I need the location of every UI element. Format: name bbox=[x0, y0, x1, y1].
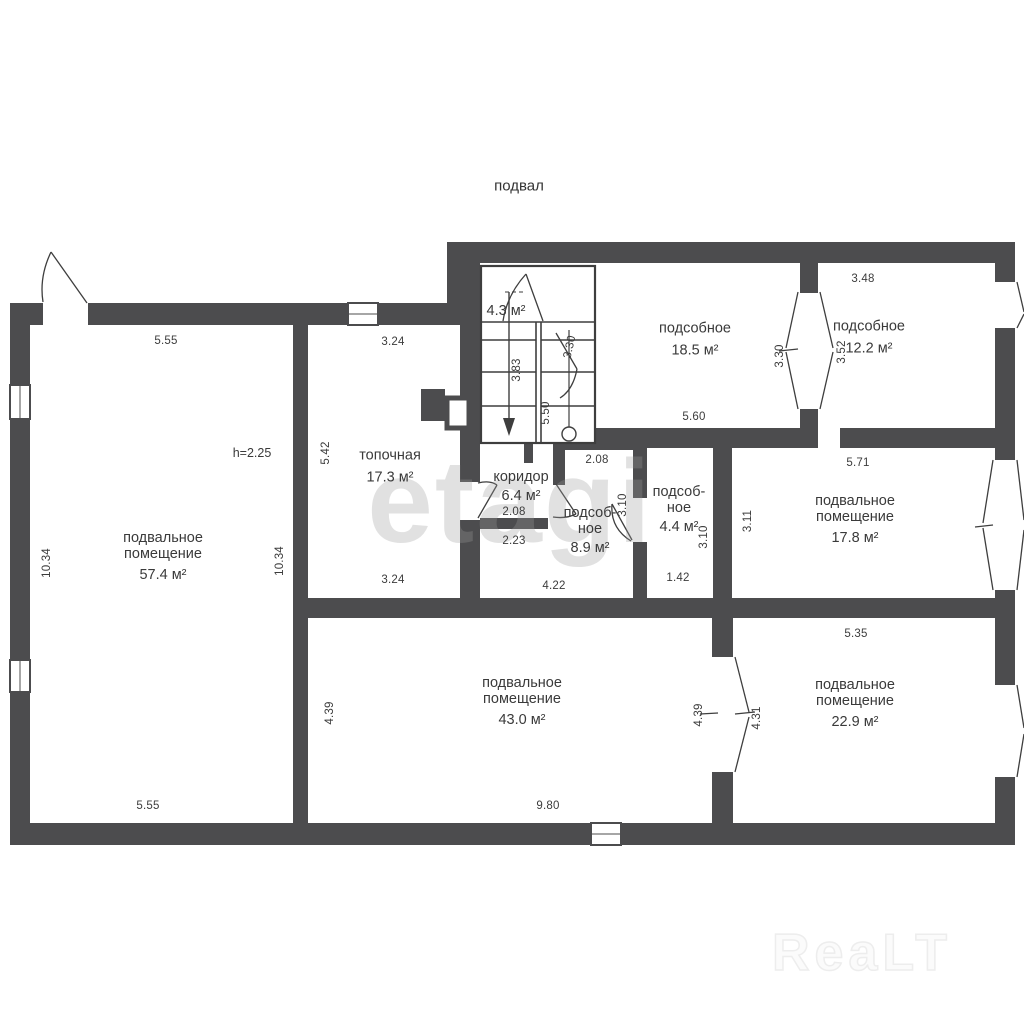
wall-segment bbox=[800, 409, 818, 428]
room-area: 57.4 м² bbox=[139, 567, 186, 583]
wall-segment bbox=[293, 598, 1015, 618]
room-stairs: 4.3 м² bbox=[487, 303, 526, 319]
entry-door-57 bbox=[42, 252, 87, 303]
exterior-door-12 bbox=[1017, 282, 1024, 328]
dim-label: 4.39 bbox=[324, 701, 336, 724]
room-name: подвальное помещение bbox=[123, 531, 203, 562]
chimney-block bbox=[421, 389, 445, 421]
dim-label: 5.50 bbox=[540, 401, 552, 424]
room-basement-43: подвальное помещение 43.0 м² bbox=[482, 676, 562, 728]
room-area: 4.4 м² bbox=[660, 519, 699, 535]
dim-label: 4.22 bbox=[542, 580, 565, 592]
room-name: подсобное bbox=[833, 320, 905, 336]
room-name: подсоб- ное bbox=[564, 506, 617, 537]
room-area: 17.3 м² bbox=[366, 469, 413, 485]
room-name: подсоб- ное bbox=[653, 485, 706, 516]
room-corridor: коридор 6.4 м² bbox=[493, 470, 548, 504]
dim-label: 5.60 bbox=[682, 411, 705, 423]
door-opening bbox=[995, 282, 1015, 328]
door-opening bbox=[995, 685, 1015, 777]
room-name: подвальное помещение bbox=[815, 494, 895, 525]
room-utility-18: подсобное 18.5 м² bbox=[659, 322, 731, 359]
room-basement-57: подвальное помещение 57.4 м² bbox=[123, 531, 203, 583]
exterior-door-22 bbox=[1017, 685, 1024, 777]
dim-label: 3.52 bbox=[836, 340, 848, 363]
dim-label: 3.48 bbox=[851, 273, 874, 285]
wall-segment bbox=[840, 428, 1015, 448]
dim-label: 3.11 bbox=[742, 510, 754, 532]
room-area: 43.0 м² bbox=[498, 712, 545, 728]
room-area: 22.9 м² bbox=[831, 714, 878, 730]
door-opening bbox=[995, 460, 1015, 590]
dim-label: 3.10 bbox=[698, 525, 710, 548]
floor-plan-page: etagi ReaLT подвал подвальное помещение … bbox=[0, 0, 1024, 1024]
dim-label: 5.55 bbox=[154, 335, 177, 347]
wall-opening bbox=[818, 428, 840, 448]
wall-segment bbox=[712, 772, 733, 825]
watermark-realt: ReaLT bbox=[772, 923, 952, 983]
room-basement-17: подвальное помещение 17.8 м² bbox=[815, 494, 895, 546]
wall-segment bbox=[293, 303, 308, 845]
flue-box bbox=[447, 398, 469, 428]
dim-label: 9.80 bbox=[536, 800, 559, 812]
dim-label: 4.39 bbox=[693, 703, 705, 726]
dim-label: 5.42 bbox=[320, 441, 332, 464]
room-area: 18.5 м² bbox=[671, 342, 718, 358]
dim-label: 2.08 bbox=[502, 506, 525, 518]
dim-label: 2.23 bbox=[502, 535, 525, 547]
stairs bbox=[481, 266, 595, 443]
room-name: коридор bbox=[493, 470, 548, 486]
room-area: 12.2 м² bbox=[845, 340, 892, 356]
double-door-43-22 bbox=[700, 657, 755, 772]
room-area: 8.9 м² bbox=[571, 540, 610, 556]
room-area: 17.8 м² bbox=[831, 530, 878, 546]
page-title: подвал bbox=[494, 178, 544, 195]
room-area: 6.4 м² bbox=[502, 488, 541, 504]
dim-label: 5.55 bbox=[136, 800, 159, 812]
room-basement-22: подвальное помещение 22.9 м² bbox=[815, 678, 895, 730]
ceiling-height-note: h=2.25 bbox=[233, 446, 272, 460]
dim-label: 1.42 bbox=[666, 572, 689, 584]
dim-label: 5.71 bbox=[846, 457, 869, 469]
dim-label: 4.31 bbox=[751, 706, 763, 729]
dim-label: 10.34 bbox=[41, 548, 53, 578]
dim-label: 3.10 bbox=[617, 493, 629, 516]
wall-segment bbox=[10, 823, 1015, 845]
dim-label: 3.30 bbox=[774, 344, 786, 367]
wall-segment bbox=[712, 618, 733, 657]
dim-label: 5.35 bbox=[844, 628, 867, 640]
room-boiler: топочная 17.3 м² bbox=[359, 449, 421, 486]
wall-segment bbox=[713, 447, 732, 598]
room-name: подсобное bbox=[659, 322, 731, 338]
room-name: подвальное помещение bbox=[815, 678, 895, 709]
stairwell bbox=[481, 266, 595, 443]
door-opening bbox=[43, 303, 88, 325]
double-door-18-12 bbox=[779, 292, 833, 409]
dim-label: 3.24 bbox=[381, 574, 404, 586]
dim-label: 3.24 bbox=[381, 336, 404, 348]
dim-label: 3.83 bbox=[511, 358, 523, 381]
wall-segment bbox=[800, 263, 818, 293]
wall-segment bbox=[447, 242, 1015, 263]
room-utility-8: подсоб- ное 8.9 м² bbox=[564, 506, 617, 556]
room-name: топочная bbox=[359, 449, 421, 465]
dim-label: 10.34 bbox=[274, 546, 286, 576]
dim-label: 2.08 bbox=[585, 454, 608, 466]
room-area: 4.3 м² bbox=[487, 303, 526, 319]
room-name: подвальное помещение bbox=[482, 676, 562, 707]
